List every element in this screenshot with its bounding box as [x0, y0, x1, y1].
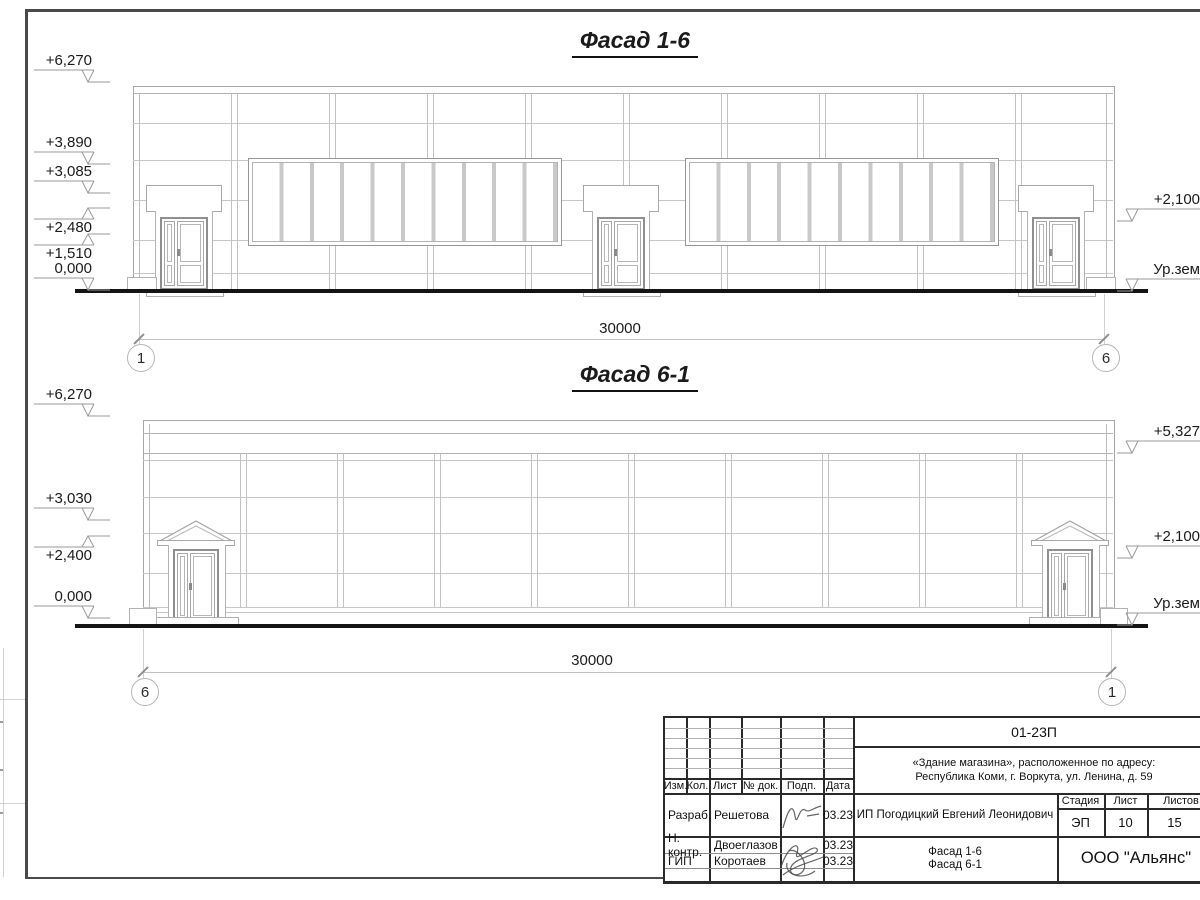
axis-number: 6: [1102, 350, 1110, 367]
door-leafs: [1047, 549, 1093, 623]
frame-left-border: [25, 9, 28, 879]
door-leaf-narrow: [1036, 221, 1047, 286]
ground-level-mark: Ур.зем: [1116, 596, 1200, 628]
ground-line: [75, 624, 1148, 628]
tb-line: [665, 768, 853, 769]
elevation-mark: 0,000: [32, 589, 116, 621]
margin-strip-tick: [0, 769, 3, 771]
axis-bubble-1: 1: [1098, 678, 1126, 706]
tb-date: 03.23: [823, 794, 853, 836]
tb-project-line2: Республика Коми, г. Воркута, ул. Ленина,…: [915, 771, 1152, 783]
tb-header-izm: Изм.: [665, 778, 686, 794]
ground-level-mark: Ур.зем: [1116, 262, 1200, 294]
tb-line: [665, 738, 853, 739]
elevation-mark: 0,000: [32, 261, 116, 293]
door-handle: [1063, 583, 1066, 590]
elevation-mark: +6,270: [32, 387, 116, 419]
door-leafs: [173, 549, 219, 623]
door-canopy: [583, 185, 659, 212]
margin-strip-tick: [0, 812, 3, 814]
tb-drawing-line2: Фасад 6-1: [928, 859, 982, 871]
tb-name: Двоеглазов: [714, 836, 780, 853]
door-leaf-wide: [614, 221, 641, 286]
frame-top-border: [25, 9, 1200, 12]
corner-line: [139, 93, 140, 290]
panel-mullion: [919, 453, 926, 607]
corner-line: [1106, 93, 1107, 290]
tb-name: Решетова: [714, 794, 780, 836]
tb-line: [665, 728, 853, 729]
door-canopy: [146, 185, 222, 212]
door-leaf-narrow: [601, 221, 612, 286]
window-band-panes: [689, 162, 995, 242]
tb-header-podp: Подп.: [780, 778, 823, 794]
door-panel: [1039, 265, 1044, 283]
panel-mullion: [1016, 453, 1023, 607]
tb-header-list: Лист: [709, 778, 741, 794]
tb-date: 03.23: [823, 836, 853, 853]
base-line: [143, 612, 1113, 613]
signature: [775, 837, 827, 881]
tb-header-kol: Кол.: [686, 778, 709, 794]
elevation-mark: +3,085: [32, 164, 116, 196]
door-panel: [1067, 556, 1086, 616]
axis-number: 1: [1108, 684, 1116, 701]
door-panel: [604, 265, 609, 283]
panel-mullion: [240, 453, 247, 607]
margin-strip-line: [3, 648, 4, 877]
tb-line: [709, 718, 711, 881]
tb-company: ООО "Альянс": [1057, 836, 1200, 881]
door-panel: [167, 265, 172, 283]
elevation-mark: +6,270: [32, 53, 116, 85]
drawing-sheet: Фасад 1-6: [0, 0, 1200, 900]
window-band-panes: [252, 162, 558, 242]
panel-mullion: [231, 93, 238, 290]
panel-mullion: [337, 453, 344, 607]
tb-role: ГИП: [668, 853, 709, 868]
tb-doc-number: 01-23П: [853, 718, 1200, 746]
dimension-line: [140, 339, 1105, 340]
elevation-mark: +1,510: [32, 232, 116, 262]
tb-date: 03.23: [823, 853, 853, 868]
tb-client: ИП Погодицкий Евгений Леонидович: [853, 793, 1057, 836]
corner-line: [149, 424, 150, 622]
tb-header-data: Дата: [823, 778, 853, 794]
tb-sheet-value: 10: [1104, 808, 1147, 836]
door-glass: [180, 224, 201, 262]
entrance-door: [1018, 185, 1094, 296]
elevation-mark: +5,327: [1116, 424, 1200, 456]
door-panel: [1052, 265, 1073, 283]
door-glass: [1039, 224, 1044, 262]
panel-mullion: [434, 453, 441, 607]
tb-line: [665, 758, 853, 759]
tb-sheets-value: 15: [1147, 808, 1200, 836]
margin-strip-line: [0, 803, 25, 804]
axis-bubble-6: 6: [131, 678, 159, 706]
door-leafs: [160, 217, 208, 290]
tb-header-doc: № док.: [741, 778, 780, 794]
axis-bubble-1: 1: [127, 344, 155, 372]
facade-6-1-title: Фасад 6-1: [460, 361, 810, 392]
base-line: [143, 607, 1113, 608]
door-panel: [193, 556, 212, 616]
margin-strip-tick: [0, 721, 3, 723]
door-leafs: [1032, 217, 1080, 290]
door-leaf-wide: [1064, 553, 1089, 619]
door-panel: [180, 556, 185, 616]
door-handle: [1049, 249, 1052, 256]
door-leafs: [597, 217, 645, 290]
ground-line: [75, 289, 1148, 293]
tb-drawing-name: Фасад 1-6 Фасад 6-1: [853, 836, 1057, 881]
entrance-porch: [1031, 518, 1109, 626]
door-handle: [177, 249, 180, 256]
tb-drawing-line1: Фасад 1-6: [928, 846, 982, 858]
tb-project: «Здание магазина», расположенное по адре…: [853, 746, 1200, 793]
door-panel: [1054, 556, 1059, 616]
door-glass: [604, 224, 609, 262]
elevation-mark: +2,100: [1116, 529, 1200, 561]
tb-stage-value: ЭП: [1057, 808, 1104, 836]
dimension-value: 30000: [532, 652, 652, 669]
dimension-line: [144, 672, 1112, 673]
tb-sheet-label: Лист: [1104, 793, 1147, 808]
panel-mullion: [531, 453, 538, 607]
tb-line: [665, 748, 853, 749]
margin-strip-line: [0, 699, 25, 700]
window-band: [248, 158, 562, 246]
elevation-mark: +3,030: [32, 491, 116, 523]
panel-mullion: [725, 453, 732, 607]
door-glass: [167, 224, 172, 262]
door-canopy: [1018, 185, 1094, 212]
elevation-mark: +2,400: [32, 534, 116, 564]
signature: [779, 796, 825, 836]
door-leaf-narrow: [1051, 553, 1062, 619]
door-handle: [614, 249, 617, 256]
parapet-line: [143, 433, 1113, 434]
tb-sheets-label: Листов: [1147, 793, 1200, 808]
entrance-porch: [157, 518, 235, 626]
door-panel: [617, 265, 638, 283]
door-glass: [617, 224, 638, 262]
door-leaf-wide: [190, 553, 215, 619]
axis-number: 6: [141, 684, 149, 701]
axis-bubble-6: 6: [1092, 344, 1120, 372]
tb-name: Коротаев: [714, 853, 780, 868]
entrance-door: [583, 185, 659, 296]
dimension-value: 30000: [560, 320, 680, 337]
window-band: [685, 158, 999, 246]
door-panel: [180, 265, 201, 283]
tb-project-line1: «Здание магазина», расположенное по адре…: [913, 757, 1156, 769]
panel-mullion: [822, 453, 829, 607]
entrance-door: [146, 185, 222, 296]
title-block: Изм. Кол. Лист № док. Подп. Дата Разраб.…: [663, 716, 1200, 884]
door-handle: [189, 583, 192, 590]
tb-role: Н. контр.: [668, 836, 709, 853]
door-glass: [1052, 224, 1073, 262]
door-leaf-wide: [1049, 221, 1076, 286]
tb-stage-label: Стадия: [1057, 793, 1104, 808]
panel-mullion: [628, 453, 635, 607]
door-leaf-wide: [177, 221, 204, 286]
door-leaf-narrow: [164, 221, 175, 286]
elevation-mark: +2,100: [1116, 192, 1200, 224]
axis-number: 1: [137, 350, 145, 367]
door-leaf-narrow: [177, 553, 188, 619]
facade-1-6-title: Фасад 1-6: [460, 27, 810, 58]
